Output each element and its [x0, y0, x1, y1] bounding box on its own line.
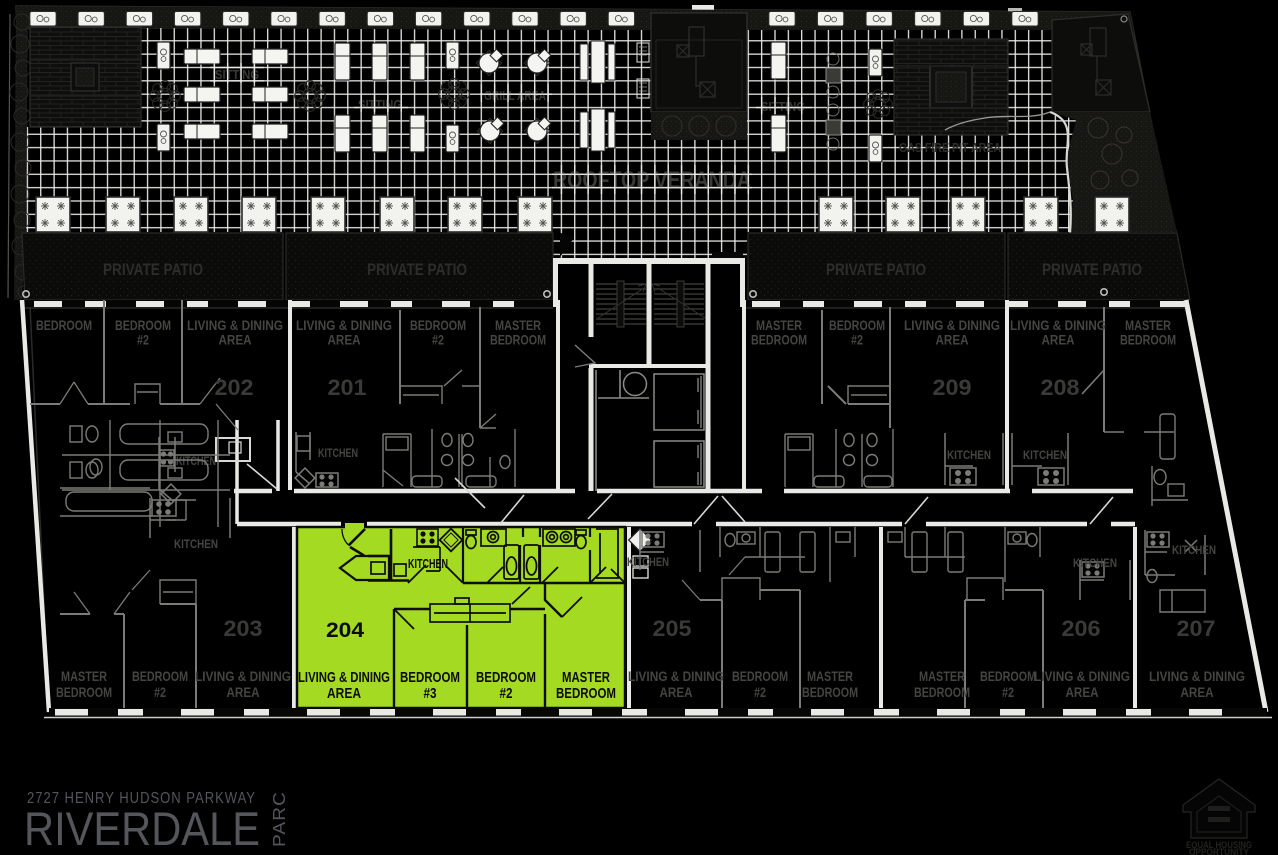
svg-text:AREA: AREA: [1181, 685, 1214, 700]
svg-text:AREA: AREA: [660, 685, 693, 700]
svg-text:#3: #3: [424, 685, 437, 702]
svg-text:AREA: AREA: [936, 333, 969, 348]
svg-text:MASTER: MASTER: [495, 318, 541, 333]
svg-text:AREA: AREA: [327, 685, 361, 702]
svg-text:KITCHEN: KITCHEN: [174, 537, 218, 551]
svg-text:PARC: PARC: [269, 791, 289, 847]
svg-text:MASTER: MASTER: [919, 669, 965, 684]
svg-text:203: 203: [224, 616, 263, 641]
svg-text:BEDROOM: BEDROOM: [490, 333, 546, 348]
svg-text:AREA: AREA: [219, 333, 252, 348]
svg-text:KITCHEN: KITCHEN: [318, 446, 358, 460]
svg-text:AREA: AREA: [1042, 333, 1075, 348]
svg-text:MASTER: MASTER: [562, 669, 610, 686]
svg-text:BEDROOM: BEDROOM: [732, 669, 788, 684]
svg-text:BEDROOM: BEDROOM: [56, 685, 112, 700]
svg-text:BEDROOM: BEDROOM: [115, 318, 171, 333]
svg-text:BEDROOM: BEDROOM: [400, 669, 460, 686]
svg-text:209: 209: [933, 375, 972, 400]
svg-text:206: 206: [1062, 616, 1101, 641]
svg-text:KITCHEN: KITCHEN: [1023, 448, 1067, 462]
svg-text:BEDROOM: BEDROOM: [802, 685, 858, 700]
svg-text:LIVING & DINING: LIVING & DINING: [298, 669, 390, 686]
svg-text:#2: #2: [432, 333, 444, 348]
svg-text:LIVING & DINING: LIVING & DINING: [187, 318, 283, 333]
svg-text:GAS FIRE PIT AREA: GAS FIRE PIT AREA: [899, 140, 1001, 155]
svg-text:LIVING & DINING: LIVING & DINING: [628, 669, 724, 684]
svg-text:KITCHEN: KITCHEN: [627, 555, 669, 569]
svg-text:208: 208: [1041, 375, 1080, 400]
svg-text:LIVING & DINING: LIVING & DINING: [1010, 318, 1106, 333]
svg-text:AREA: AREA: [227, 685, 260, 700]
svg-text:207: 207: [1177, 616, 1216, 641]
svg-text:MASTER: MASTER: [807, 669, 853, 684]
svg-text:PRIVATE PATIO: PRIVATE PATIO: [367, 261, 467, 279]
svg-text:KITCHEN: KITCHEN: [1172, 543, 1216, 557]
svg-text:RIVERDALE: RIVERDALE: [24, 802, 260, 855]
svg-text:KITCHEN: KITCHEN: [408, 557, 448, 571]
svg-text:LIVING & DINING: LIVING & DINING: [195, 669, 291, 684]
svg-text:BEDROOM: BEDROOM: [476, 669, 536, 686]
svg-text:BEDROOM: BEDROOM: [556, 685, 616, 702]
svg-text:BEDROOM: BEDROOM: [36, 318, 92, 333]
svg-text:BEDROOM: BEDROOM: [751, 333, 807, 348]
svg-text:KITCHEN: KITCHEN: [947, 448, 991, 462]
svg-text:PRIVATE PATIO: PRIVATE PATIO: [103, 261, 203, 279]
svg-text:#2: #2: [154, 685, 166, 700]
svg-text:#2: #2: [851, 333, 863, 348]
svg-text:KITCHEN: KITCHEN: [1073, 556, 1117, 570]
svg-text:MASTER: MASTER: [756, 318, 802, 333]
svg-text:OPPORTUNITY: OPPORTUNITY: [1189, 847, 1249, 855]
svg-text:PRIVATE PATIO: PRIVATE PATIO: [1042, 261, 1142, 279]
svg-text:BEDROOM: BEDROOM: [132, 669, 188, 684]
svg-text:204: 204: [326, 618, 364, 642]
svg-text:PRIVATE PATIO: PRIVATE PATIO: [826, 261, 926, 279]
svg-text:MASTER: MASTER: [61, 669, 107, 684]
svg-text:BEDROOM: BEDROOM: [1120, 333, 1176, 348]
svg-text:#2: #2: [500, 685, 513, 702]
svg-text:205: 205: [653, 616, 692, 641]
svg-text:MASTER: MASTER: [1125, 318, 1171, 333]
svg-text:#2: #2: [137, 333, 149, 348]
svg-text:#2: #2: [1002, 685, 1014, 700]
svg-text:BEDROOM: BEDROOM: [980, 669, 1036, 684]
svg-text:LIVING & DINING: LIVING & DINING: [904, 318, 1000, 333]
svg-text:AREA: AREA: [1066, 685, 1099, 700]
svg-text:LIVING & DINING: LIVING & DINING: [1034, 669, 1130, 684]
svg-text:201: 201: [328, 375, 367, 400]
svg-text:BEDROOM: BEDROOM: [914, 685, 970, 700]
svg-text:LIVING & DINING: LIVING & DINING: [296, 318, 392, 333]
svg-text:202: 202: [215, 375, 254, 400]
svg-text:AREA: AREA: [328, 333, 361, 348]
svg-text:KITCHEN: KITCHEN: [176, 454, 216, 468]
svg-text:BEDROOM: BEDROOM: [829, 318, 885, 333]
svg-text:BEDROOM: BEDROOM: [410, 318, 466, 333]
svg-text:#2: #2: [754, 685, 766, 700]
svg-text:LIVING & DINING: LIVING & DINING: [1149, 669, 1245, 684]
